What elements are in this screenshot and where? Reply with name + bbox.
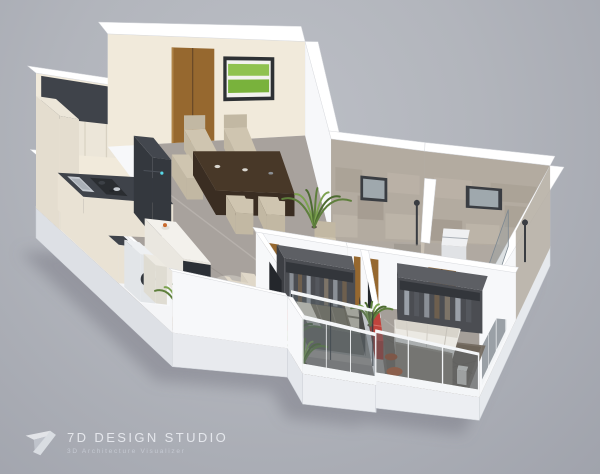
brand-tagline: 3D Architecture Visualizer (67, 448, 228, 455)
brand-name: 7D DESIGN STUDIO (67, 431, 228, 445)
brand-logo: 7D DESIGN STUDIO 3D Architecture Visuali… (24, 428, 228, 458)
floorplan-svg (0, 0, 600, 474)
floorplan-render: 7D DESIGN STUDIO 3D Architecture Visuali… (0, 0, 600, 474)
logo-7d-monogram-icon (24, 428, 60, 458)
brand-logo-text: 7D DESIGN STUDIO 3D Architecture Visuali… (67, 431, 228, 454)
